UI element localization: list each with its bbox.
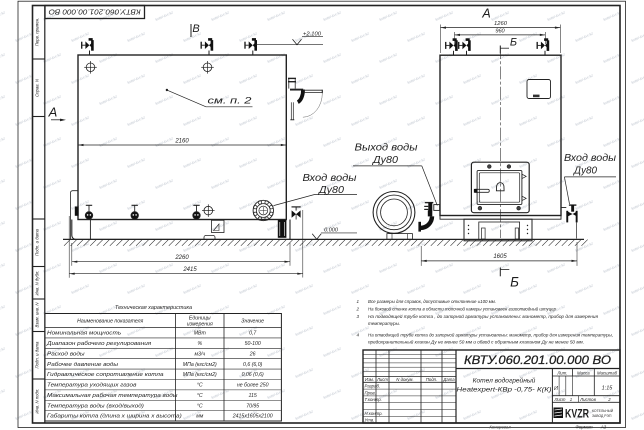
svg-text:Значение: Значение [241,319,264,325]
svg-text:°С: °С [197,393,203,399]
svg-text:2260: 2260 [174,255,189,261]
svg-text:На подводящей трубе котла , д: На подводящей трубе котла , до запорной … [368,313,599,319]
svg-text:Температура воды (вход/выход): Температура воды (вход/выход) [47,403,144,409]
svg-text:Справ. N: Справ. N [35,78,40,97]
svg-text:0,6 (6,0): 0,6 (6,0) [243,362,263,368]
svg-text:Т.контр.: Т.контр. [365,397,382,402]
svg-text:На боковой стенке котла в обла: На боковой стенке котла в области топочн… [368,305,556,311]
svg-text:предохранительный клапан Ду н: предохранительный клапан Ду не менее 50 … [368,339,584,345]
svg-text:В: В [192,23,199,35]
svg-text:2415х1605х2100: 2415х1605х2100 [232,414,273,420]
svg-text:измерения: измерения [187,322,213,328]
svg-text:Ду80: Ду80 [372,155,399,166]
svg-text:°С: °С [197,383,203,389]
svg-text:температуры.: температуры. [368,321,400,326]
svg-text:Техническая характеристика: Техническая характеристика [115,305,193,311]
svg-text:Ду80: Ду80 [573,166,597,177]
svg-text:0,06 (0,6): 0,06 (0,6) [242,372,264,378]
svg-text:Все размеры для справок, допус: Все размеры для справок, допустимые откл… [368,299,496,304]
svg-text:Вход воды: Вход воды [564,153,617,164]
svg-text:МПа (кгс/см2): МПа (кгс/см2) [183,362,217,368]
svg-text:Подп. и дата: Подп. и дата [35,341,40,369]
svg-text:КОТЕЛЬНЫЙ: КОТЕЛЬНЫЙ [592,409,614,413]
svg-text:Подп. и дата: Подп. и дата [35,228,40,256]
svg-text:Температура уходящих газов: Температура уходящих газов [47,383,137,389]
svg-text:КВТУ.060.201.00.000 ВО: КВТУ.060.201.00.000 ВО [48,7,140,16]
svg-text:А3: А3 [600,424,607,429]
svg-text:70/95: 70/95 [246,403,259,409]
svg-text:50-100: 50-100 [245,341,261,347]
svg-text:Пров.: Пров. [365,390,376,395]
svg-text:Б: Б [510,37,517,49]
svg-text:Лит.: Лит. [556,370,567,375]
svg-text:Габариты котла (длина х ширина: Габариты котла (длина х ширина х высота) [47,414,182,420]
svg-text:Котел водогрейный: Котел водогрейный [473,376,536,384]
svg-text:Лист: Лист [553,397,565,402]
svg-text:2: 2 [356,306,360,311]
svg-text:Гидравлическое сопротивление к: Гидравлическое сопротивление котла [47,372,164,378]
svg-text:Выход воды: Выход воды [355,142,419,153]
svg-text:Взам. инв. N: Взам. инв. N [35,302,40,328]
svg-text:°С: °С [197,403,203,409]
svg-text:Копировал: Копировал [489,424,511,429]
svg-text:Инв. N подл.: Инв. N подл. [35,388,40,413]
svg-text:не более 250: не более 250 [237,383,269,389]
svg-text:МВт: МВт [194,331,207,337]
svg-text:м3/ч: м3/ч [194,351,205,357]
svg-text:МПа (кгс/см2): МПа (кгс/см2) [183,372,217,378]
svg-text:0,7: 0,7 [249,331,257,337]
svg-text:А: А [481,7,490,21]
svg-text:Масса: Масса [577,370,590,375]
svg-text:1:15: 1:15 [602,386,614,392]
svg-text:КВТУ.060.201.00.000 ВО: КВТУ.060.201.00.000 ВО [464,355,611,367]
svg-text:Лист: Лист [376,377,388,382]
svg-text:Н.контр.: Н.контр. [365,411,383,416]
svg-text:Утв.: Утв. [365,418,375,423]
svg-text:KVZR: KVZR [565,409,590,421]
svg-text:Диапазон рабочего регулировани: Диапазон рабочего регулирования [46,341,152,347]
svg-text:А: А [48,104,58,119]
svg-text:Единицы: Единицы [189,315,211,321]
svg-text:Номинальная мощность: Номинальная мощность [47,331,121,337]
svg-text:2415: 2415 [182,267,197,273]
svg-text:На отводящей трубе котла до за: На отводящей трубе котла до запорной арм… [368,332,613,338]
svg-text:мм: мм [196,414,204,420]
svg-text:1605: 1605 [493,254,507,260]
svg-text:Максимальная рабочая температу: Максимальная рабочая температура воды [47,393,178,399]
svg-text:Формат: Формат [575,424,592,429]
svg-text:Рабочее давление воды: Рабочее давление воды [47,362,118,368]
svg-text:Масштаб: Масштаб [597,370,618,375]
svg-text:960: 960 [495,29,505,35]
svg-text:Heatexpert-КВр -0,75- К(К): Heatexpert-КВр -0,75- К(К) [457,386,552,393]
svg-text:Разраб.: Разраб. [365,384,381,389]
svg-text:1260: 1260 [494,21,508,27]
svg-text:Вход воды: Вход воды [303,173,358,184]
svg-text:Наименование показателя: Наименование показателя [77,319,143,325]
svg-text:Инв. N дубл.: Инв. N дубл. [35,271,40,296]
svg-text:Б: Б [510,274,519,289]
svg-text:Дата: Дата [442,377,455,382]
svg-text:%: % [197,341,202,347]
svg-text:2160: 2160 [174,138,189,144]
svg-text:Изм.: Изм. [365,377,374,382]
svg-text:Расход воды: Расход воды [47,351,85,357]
svg-text:ЗАВОД РЭП: ЗАВОД РЭП [592,414,612,418]
svg-text:115: 115 [249,393,257,399]
svg-text:см. п. 2: см. п. 2 [208,96,253,107]
svg-text:Подп.: Подп. [426,377,437,382]
svg-text:N докум.: N докум. [396,377,413,382]
svg-text:Перв. примен.: Перв. примен. [35,18,40,47]
svg-text:26: 26 [249,351,256,357]
svg-text:Листов: Листов [579,397,596,402]
svg-text:И: И [554,386,558,392]
